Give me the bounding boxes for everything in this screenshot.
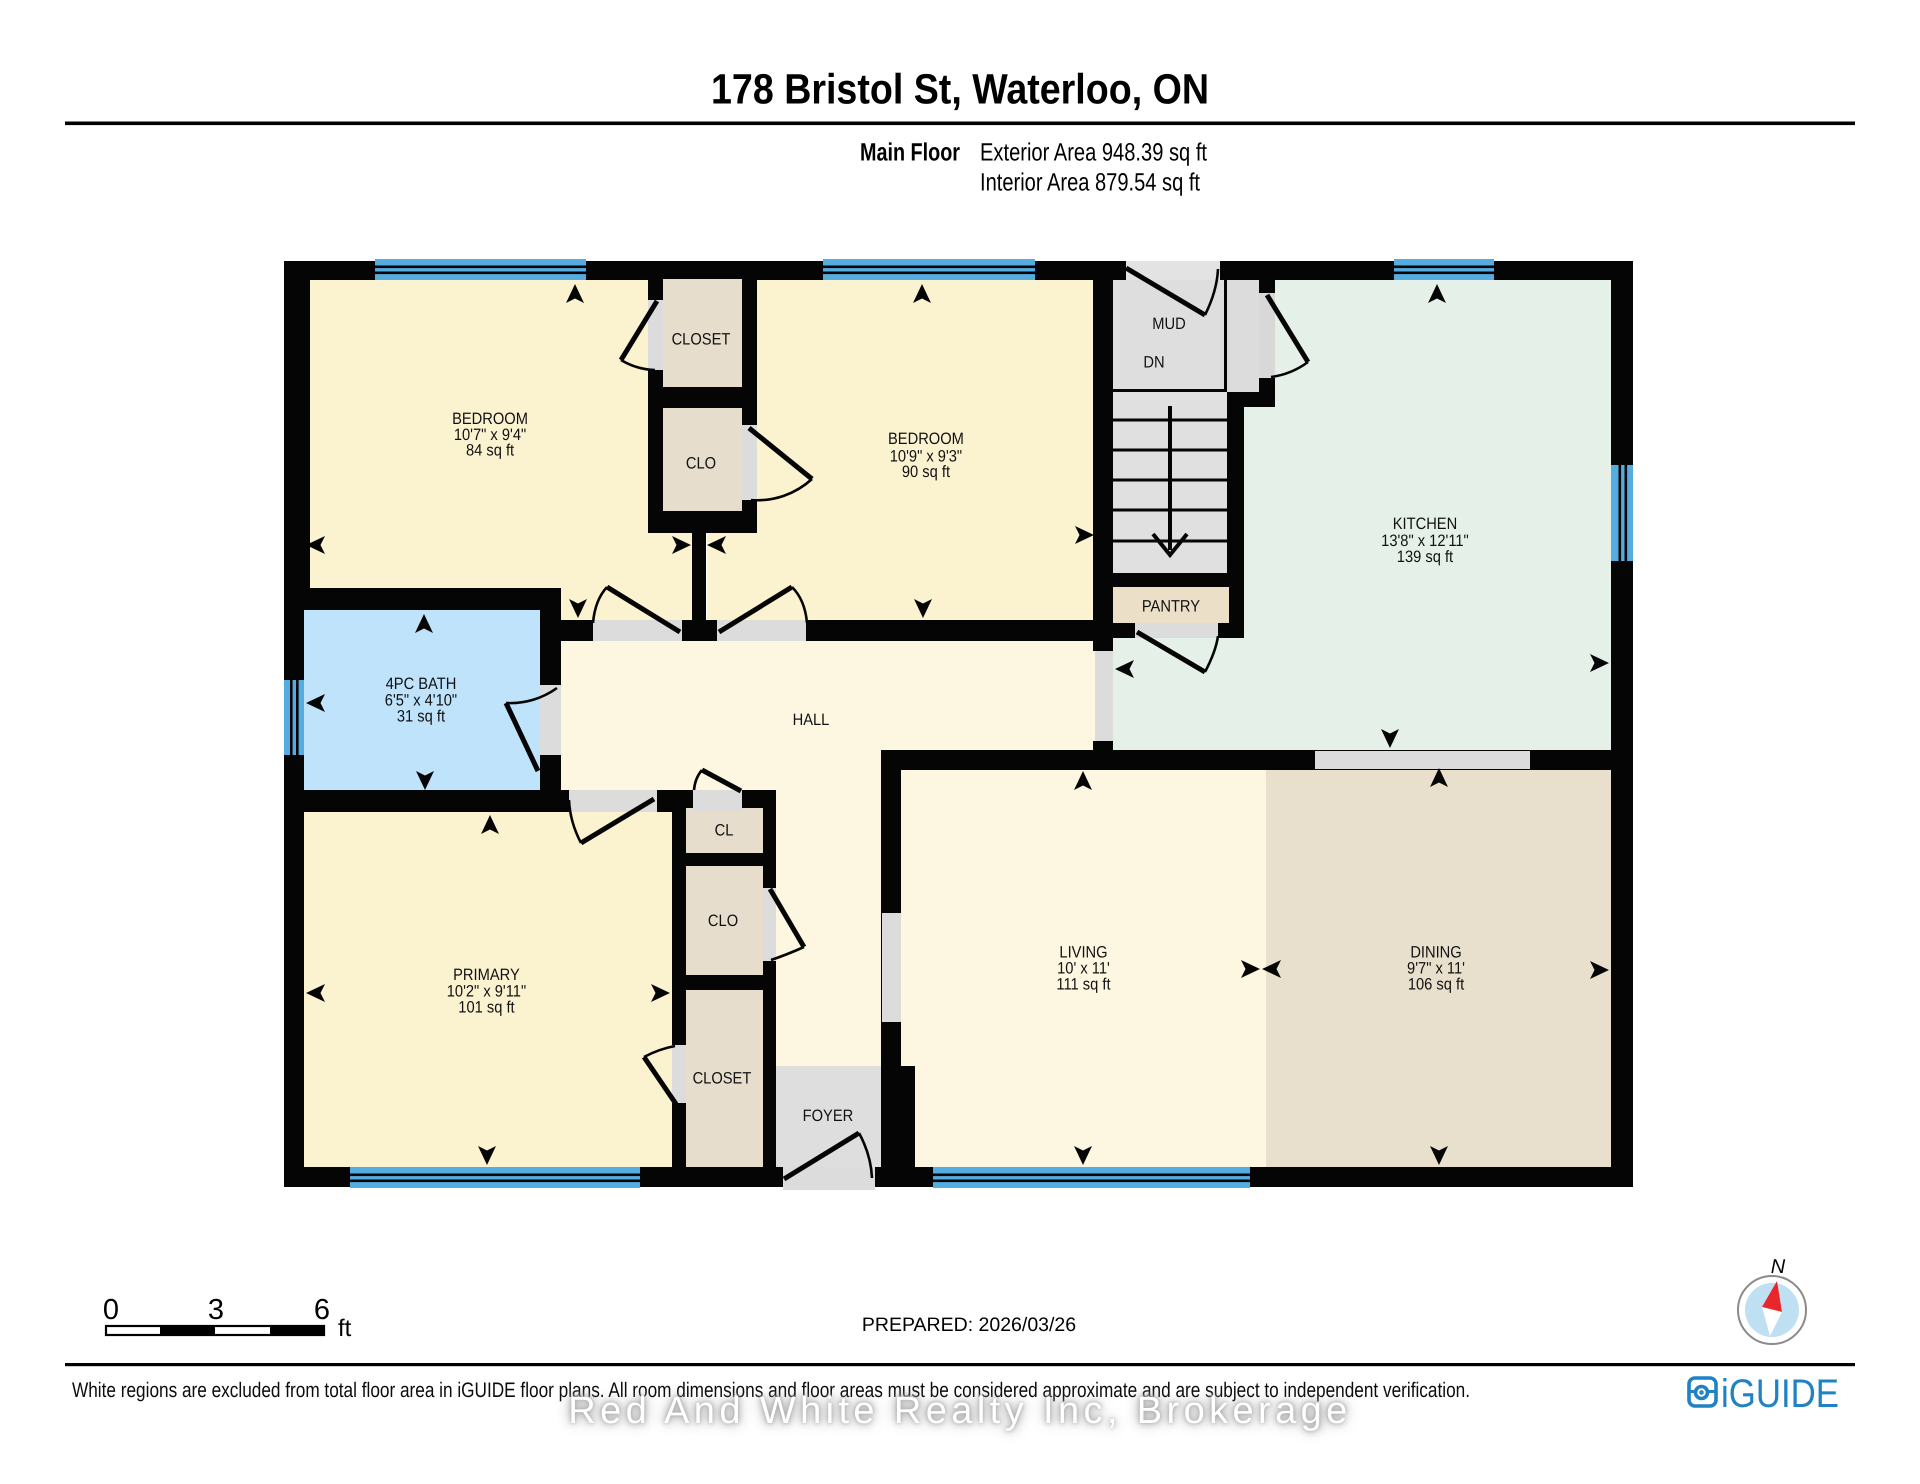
svg-text:BEDROOM: BEDROOM xyxy=(888,430,964,448)
svg-text:CLOSET: CLOSET xyxy=(693,1070,752,1088)
svg-text:111 sq ft: 111 sq ft xyxy=(1056,976,1111,994)
svg-text:6: 6 xyxy=(314,1294,330,1326)
svg-text:139 sq ft: 139 sq ft xyxy=(1397,548,1454,566)
svg-text:Exterior Area 948.39 sq ft: Exterior Area 948.39 sq ft xyxy=(980,139,1207,167)
svg-text:ft: ft xyxy=(338,1315,352,1342)
svg-text:PREPARED: 2026/03/26: PREPARED: 2026/03/26 xyxy=(862,1314,1076,1336)
svg-text:CLOSET: CLOSET xyxy=(672,331,731,349)
svg-text:FOYER: FOYER xyxy=(803,1107,854,1125)
svg-text:MUD: MUD xyxy=(1152,315,1186,333)
svg-text:Interior Area 879.54 sq ft: Interior Area 879.54 sq ft xyxy=(980,169,1200,197)
svg-text:90 sq ft: 90 sq ft xyxy=(902,463,951,481)
svg-text:84 sq ft: 84 sq ft xyxy=(466,442,515,460)
svg-text:CLO: CLO xyxy=(708,912,738,930)
svg-text:178 Bristol St, Waterloo, ON: 178 Bristol St, Waterloo, ON xyxy=(711,67,1209,114)
svg-text:PANTRY: PANTRY xyxy=(1142,598,1200,616)
svg-text:PRIMARY: PRIMARY xyxy=(453,966,520,984)
svg-text:31 sq ft: 31 sq ft xyxy=(397,708,446,726)
svg-text:HALL: HALL xyxy=(793,711,830,729)
svg-text:CLO: CLO xyxy=(686,455,716,473)
svg-text:106 sq ft: 106 sq ft xyxy=(1408,976,1465,994)
svg-text:DN: DN xyxy=(1143,354,1164,372)
svg-text:CL: CL xyxy=(715,822,734,840)
svg-text:0: 0 xyxy=(103,1294,119,1326)
svg-text:N: N xyxy=(1771,1256,1786,1278)
svg-text:101 sq ft: 101 sq ft xyxy=(458,999,515,1017)
svg-text:4PC BATH: 4PC BATH xyxy=(386,675,457,693)
svg-text:Main Floor: Main Floor xyxy=(860,139,960,167)
svg-text:KITCHEN: KITCHEN xyxy=(1393,515,1457,533)
svg-text:3: 3 xyxy=(208,1294,224,1326)
